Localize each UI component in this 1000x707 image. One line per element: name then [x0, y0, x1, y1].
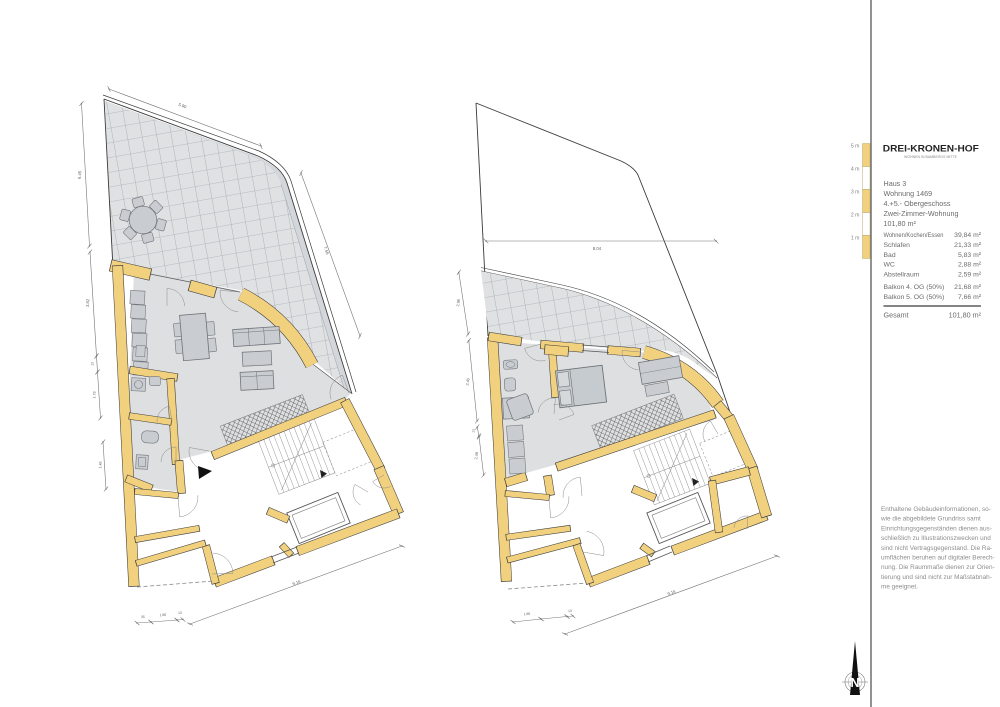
- svg-text:nung. Die Raummaße dienen zur: nung. Die Raummaße dienen zur Orien-: [881, 564, 995, 571]
- svg-text:2,59 m²: 2,59 m²: [958, 272, 982, 279]
- svg-text:6.45: 6.45: [77, 170, 83, 179]
- svg-text:Enthaltene Gebäudeinformatione: Enthaltene Gebäudeinformationen, so-: [881, 506, 991, 513]
- svg-text:Balkon 4. OG (50%): Balkon 4. OG (50%): [884, 284, 945, 291]
- svg-text:101,80 m²: 101,80 m²: [884, 219, 917, 228]
- svg-text:sind nicht Vertragsgegenstand.: sind nicht Vertragsgegenstand. Die Ra-: [881, 545, 992, 552]
- svg-text:3 m: 3 m: [851, 190, 860, 196]
- svg-text:21,68 m²: 21,68 m²: [954, 284, 982, 291]
- svg-text:DREI-KRONEN-HOF: DREI-KRONEN-HOF: [883, 144, 979, 154]
- svg-text:Schlafen: Schlafen: [884, 242, 911, 249]
- svg-text:4 m: 4 m: [851, 167, 860, 173]
- svg-text:1 m: 1 m: [851, 236, 860, 242]
- svg-text:8.04: 8.04: [593, 246, 602, 251]
- svg-text:Zwei-Zimmer-Wohnung: Zwei-Zimmer-Wohnung: [884, 209, 959, 218]
- svg-text:1.79: 1.79: [92, 391, 96, 398]
- svg-text:Wohnung 1469: Wohnung 1469: [884, 189, 933, 198]
- svg-text:WC: WC: [884, 262, 895, 269]
- svg-text:1.45: 1.45: [98, 461, 102, 468]
- svg-text:Bad: Bad: [884, 252, 896, 259]
- svg-text:39,84 m²: 39,84 m²: [954, 232, 982, 239]
- svg-text:3.82: 3.82: [85, 298, 91, 307]
- svg-text:WOHNEN IN BAMBERGS MITTE: WOHNEN IN BAMBERGS MITTE: [904, 155, 958, 159]
- svg-text:4.+5.- Obergeschoss: 4.+5.- Obergeschoss: [884, 199, 951, 208]
- svg-text:Wohnen/Kochen/Essen: Wohnen/Kochen/Essen: [884, 232, 944, 239]
- svg-text:13: 13: [90, 362, 94, 366]
- svg-text:5,83 m²: 5,83 m²: [958, 252, 982, 259]
- svg-text:1.86: 1.86: [523, 612, 530, 616]
- svg-text:Balkon 5. OG (50%): Balkon 5. OG (50%): [884, 294, 945, 301]
- svg-text:2,88 m²: 2,88 m²: [958, 262, 982, 269]
- svg-text:2 m: 2 m: [851, 213, 860, 219]
- svg-text:schließlich zu Illustrationszw: schließlich zu Illustrationszwecken und: [881, 535, 991, 542]
- svg-text:me geeignet.: me geeignet.: [881, 584, 918, 591]
- svg-text:Haus 3: Haus 3: [884, 179, 907, 188]
- svg-text:13: 13: [178, 611, 182, 615]
- svg-text:21,33 m²: 21,33 m²: [954, 242, 982, 249]
- svg-text:Gesamt: Gesamt: [884, 311, 909, 320]
- svg-text:35: 35: [141, 615, 145, 619]
- svg-text:7,66 m²: 7,66 m²: [958, 294, 982, 301]
- svg-text:N: N: [850, 676, 859, 690]
- svg-text:13: 13: [568, 609, 572, 613]
- svg-text:101,80 m²: 101,80 m²: [949, 311, 982, 320]
- svg-text:5 m: 5 m: [851, 144, 860, 150]
- svg-text:tierung und sind nicht zur Maß: tierung und sind nicht zur Maßstabnah-: [881, 574, 992, 581]
- svg-text:Abstellraum: Abstellraum: [884, 272, 920, 279]
- svg-text:umflächen beruhen auf digitale: umflächen beruhen auf digitaler Berech-: [881, 555, 995, 562]
- svg-text:wie die abgebildete Grundriss: wie die abgebildete Grundriss samt: [880, 516, 981, 523]
- svg-text:1.86: 1.86: [159, 613, 166, 617]
- svg-text:Einrichtungsgegenständen diene: Einrichtungsgegenständen dienen aus-: [881, 525, 992, 532]
